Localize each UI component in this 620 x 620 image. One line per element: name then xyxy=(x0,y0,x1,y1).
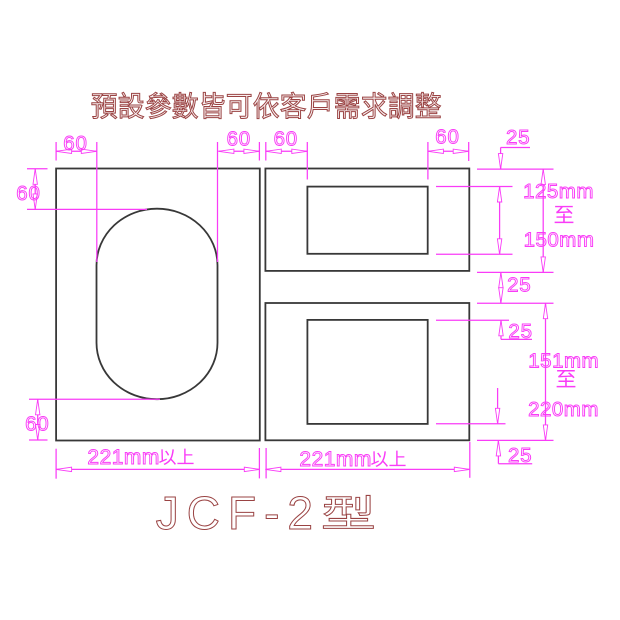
svg-text:150mm: 150mm xyxy=(524,229,595,252)
svg-text:221mm: 221mm xyxy=(87,446,160,469)
svg-text:151mm: 151mm xyxy=(528,350,599,373)
svg-text:60: 60 xyxy=(63,132,87,155)
svg-text:60: 60 xyxy=(16,182,40,205)
svg-text:221mm: 221mm xyxy=(299,448,372,471)
svg-text:25: 25 xyxy=(508,320,532,343)
svg-text:25: 25 xyxy=(507,274,531,297)
svg-text:25: 25 xyxy=(508,444,532,467)
svg-text:60: 60 xyxy=(274,128,298,151)
svg-text:220mm: 220mm xyxy=(528,398,599,421)
svg-text:125mm: 125mm xyxy=(523,180,594,203)
svg-text:25: 25 xyxy=(506,126,530,149)
svg-text:60: 60 xyxy=(25,412,49,435)
svg-text:60: 60 xyxy=(435,126,459,149)
svg-text:60: 60 xyxy=(227,128,251,151)
svg-text:JCF-2: JCF-2 xyxy=(156,487,321,539)
